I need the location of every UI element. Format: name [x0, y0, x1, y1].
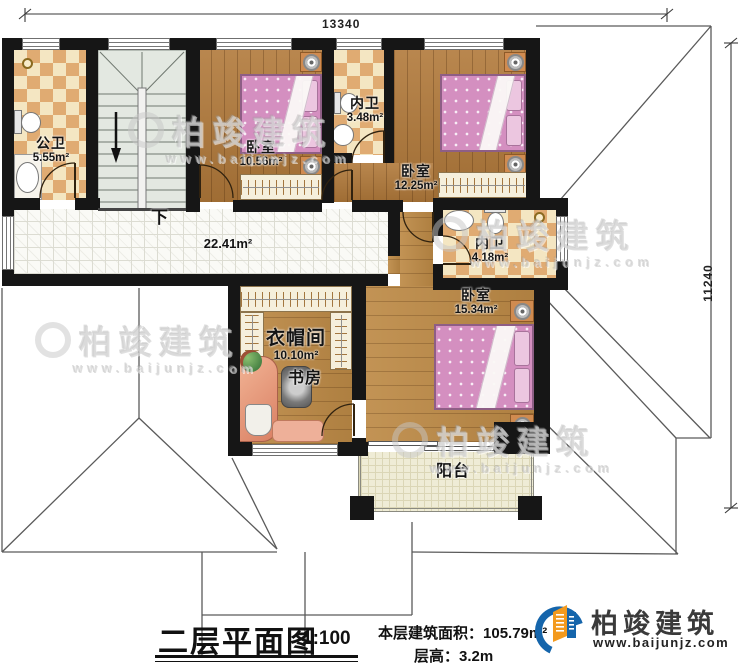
room-label-neiwei2: 内卫4.18m²: [458, 236, 522, 265]
stair-stringer: [138, 88, 146, 209]
sink-basin: [444, 210, 474, 231]
sink-basin: [332, 124, 354, 146]
staircase: [98, 50, 186, 210]
passage-floor: [388, 256, 400, 274]
balcony-floor: [358, 452, 534, 512]
window: [336, 38, 382, 50]
floor-height-text: 层高：3.2m: [414, 645, 493, 666]
wall: [186, 38, 200, 212]
wall: [388, 212, 400, 256]
room-label-neiwei1: 内卫3.48m²: [336, 96, 394, 125]
sliding-door: [424, 446, 494, 451]
bed-bedroom2: [440, 74, 526, 152]
wall: [526, 38, 540, 210]
study-lamp: [245, 404, 272, 436]
wall: [228, 274, 240, 456]
title-underline-thin: [155, 661, 358, 662]
title-underline: [155, 655, 358, 658]
window: [556, 216, 568, 262]
se-corridor-floor: [400, 212, 433, 288]
wall: [494, 422, 540, 454]
room-label-study: 书房: [280, 370, 330, 388]
nightstand: [504, 154, 526, 174]
wall: [86, 38, 98, 210]
wall: [2, 198, 40, 210]
wall: [338, 442, 368, 456]
wall: [322, 38, 334, 203]
room-label-bedroom2: 卧室12.25m²: [384, 164, 448, 193]
stairs-down-label: 下: [147, 208, 173, 227]
wardrobe-bedroom2: [438, 172, 528, 198]
nightstand: [504, 52, 526, 72]
balcony-column: [350, 496, 374, 520]
room-label-hallway: 22.41m²: [196, 237, 260, 252]
toilet-bowl: [487, 212, 504, 234]
wall: [233, 200, 322, 212]
study-rug: [272, 420, 324, 442]
wall: [2, 274, 388, 286]
sink-basin: [16, 162, 39, 193]
room-label-balcony: 阳台: [428, 463, 478, 481]
wall: [556, 198, 568, 216]
watermark: 柏竣建筑 www.baijunjz.com: [35, 316, 257, 376]
wall: [334, 153, 352, 163]
room-label-cloakroom: 衣帽间 10.10m²: [244, 328, 348, 363]
room-label-gongwei: 公卫5.55m²: [16, 136, 86, 165]
wall: [228, 442, 252, 456]
window: [2, 216, 14, 270]
toilet-bowl: [21, 112, 41, 133]
window: [252, 444, 338, 456]
window: [216, 38, 292, 50]
nightstand: [510, 300, 534, 322]
towel-ring-icon: [534, 212, 545, 223]
wall: [352, 200, 403, 212]
window: [108, 38, 170, 50]
floor-area-text: 本层建筑面积：105.79m²: [378, 622, 547, 643]
company-logo-icon: [535, 600, 587, 663]
floor-plan-canvas: 公卫5.55m² 卧室10.56m² 内卫3.48m² 卧室12.25m² 内卫…: [0, 0, 750, 668]
towel-ring-icon: [22, 58, 33, 69]
wall: [352, 284, 366, 400]
dimension-right: 11240: [680, 255, 736, 311]
nightstand: [300, 52, 322, 72]
plan-scale: 1:100: [302, 628, 351, 650]
company-logo-website: www.baijunjz.com: [593, 635, 729, 650]
balcony-column: [518, 496, 542, 520]
window: [22, 38, 60, 50]
wall: [433, 198, 526, 210]
bed-bedroom3: [434, 324, 534, 410]
nightstand: [300, 156, 322, 176]
wardrobe-cloakroom-top: [240, 286, 352, 312]
room-label-bedroom1: 卧室10.56m²: [226, 140, 296, 169]
wardrobe-bedroom1: [240, 174, 322, 200]
window: [424, 38, 504, 50]
room-label-bedroom3: 卧室15.34m²: [442, 288, 510, 317]
wall: [433, 264, 443, 290]
dimension-top: 13340: [322, 17, 360, 31]
